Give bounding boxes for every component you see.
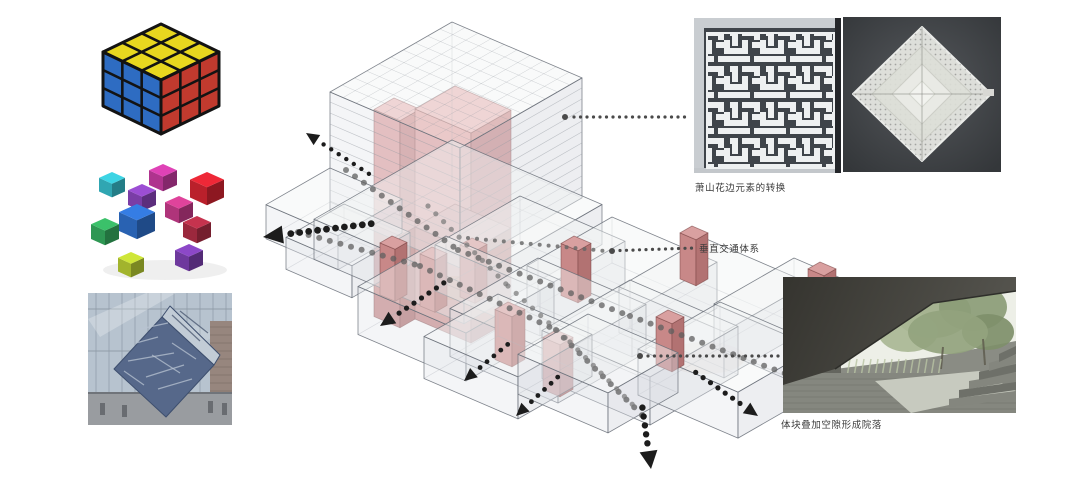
lace-transform-caption: 萧山花边元素的转换 bbox=[695, 180, 786, 194]
vertical-circulation-label: 垂直交通体系 bbox=[699, 241, 760, 255]
exploded-cubes-image bbox=[85, 158, 237, 283]
courtyard-render-graphic bbox=[783, 277, 1016, 413]
lace-lattice-image bbox=[694, 18, 841, 173]
lace-lattice-graphic bbox=[694, 18, 841, 173]
lace-doily-image bbox=[843, 17, 1001, 172]
cube-sculpture-image bbox=[88, 293, 232, 425]
lace-doily-graphic bbox=[843, 17, 1001, 172]
rubiks-cube-graphic bbox=[95, 18, 228, 140]
concept-board: 萧山花边元素的转换 垂直交通体系 体块叠加空隙形成院落 bbox=[0, 0, 1080, 483]
exploded-cubes-graphic bbox=[85, 158, 237, 283]
courtyard-formation-caption: 体块叠加空隙形成院落 bbox=[781, 417, 882, 431]
rubiks-cube-image bbox=[95, 18, 228, 140]
courtyard-render-image bbox=[783, 277, 1016, 413]
cube-sculpture-graphic bbox=[88, 293, 232, 425]
